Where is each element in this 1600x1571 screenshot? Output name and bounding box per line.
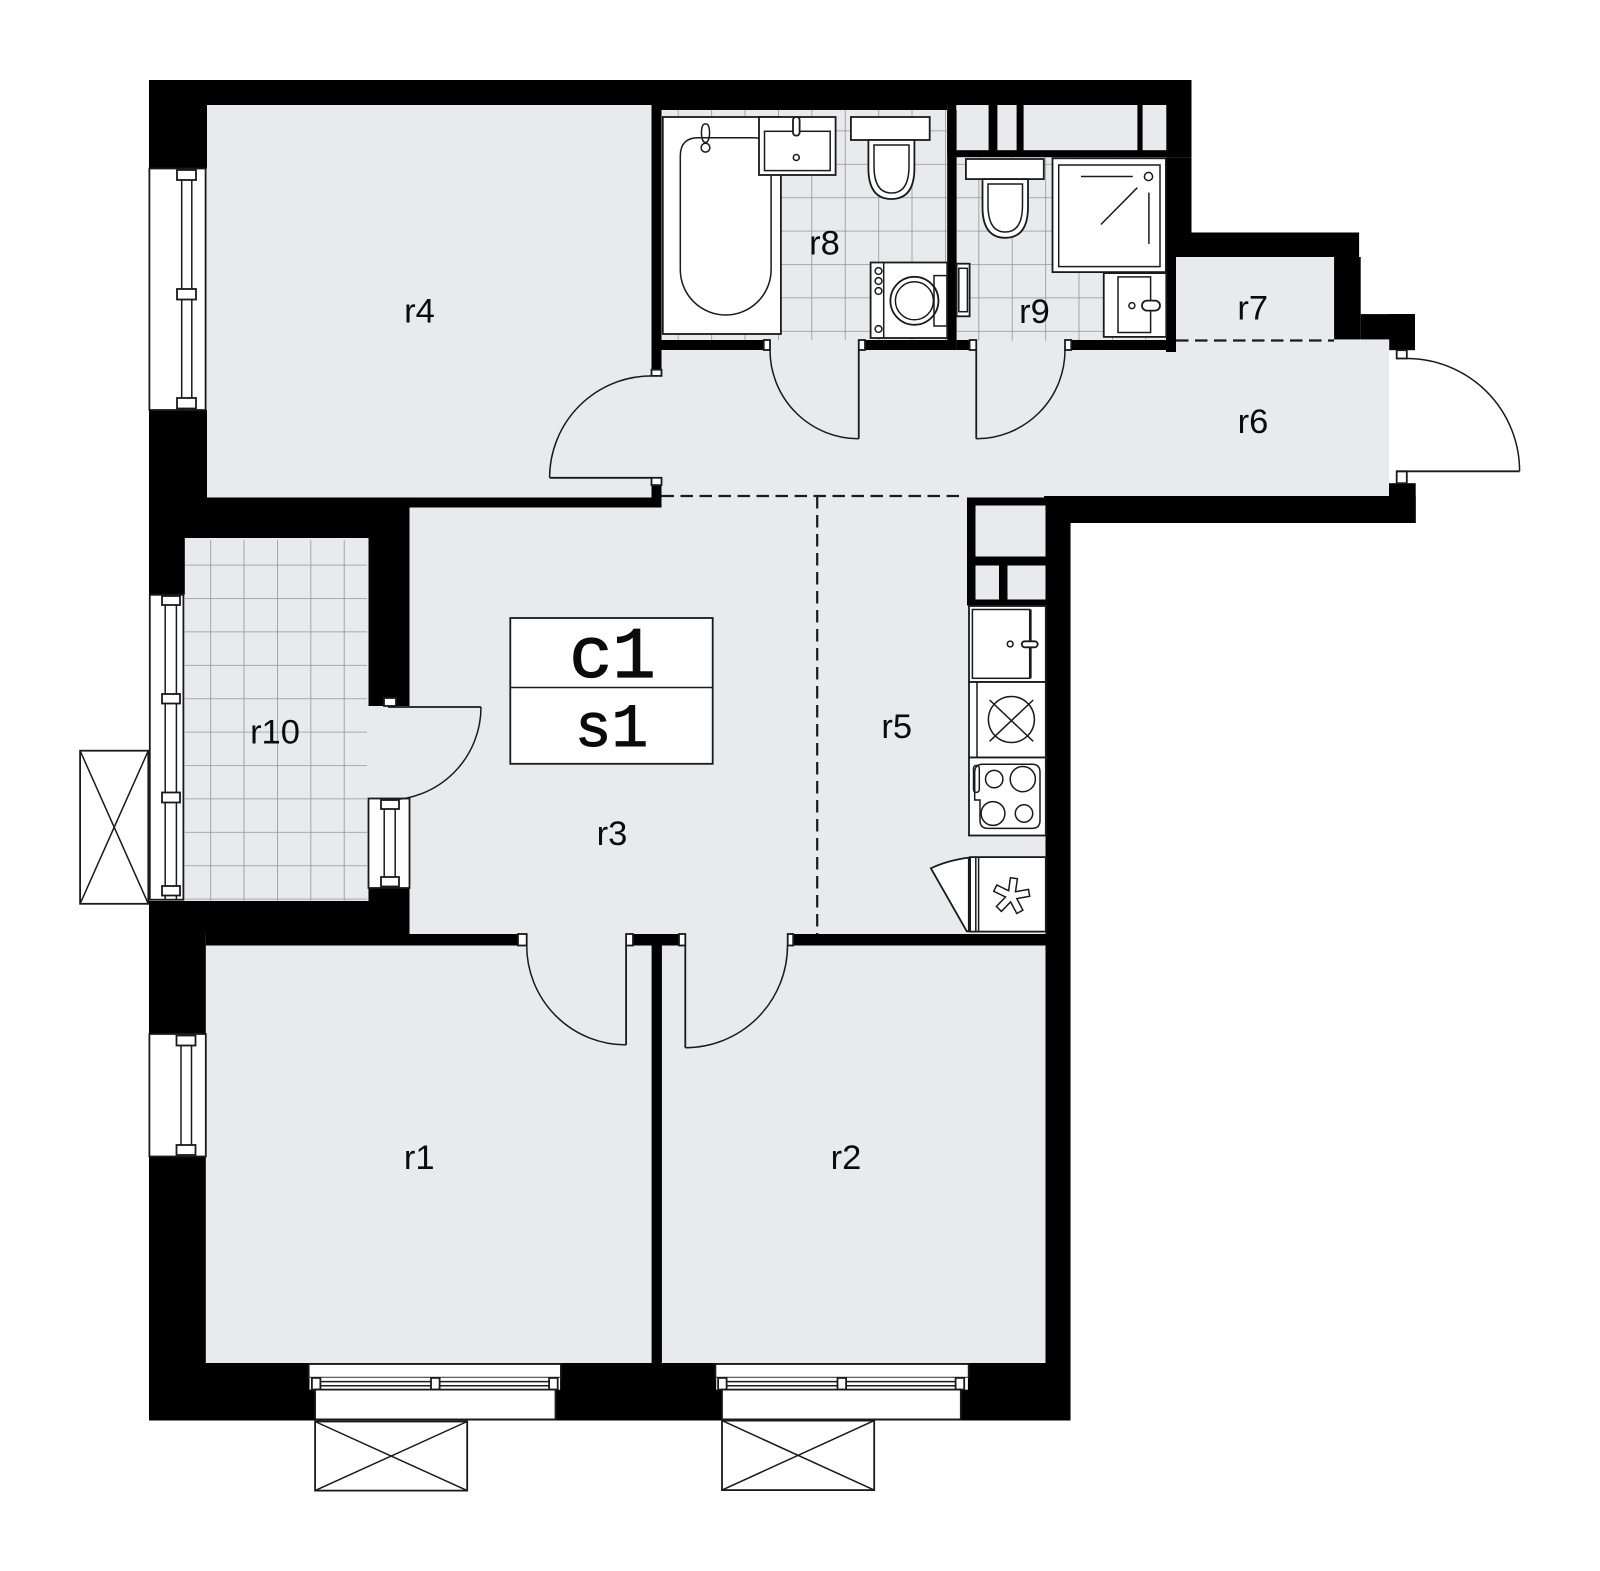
svg-text:r8: r8 <box>809 225 840 263</box>
svg-text:r6: r6 <box>1238 403 1269 441</box>
svg-text:s1: s1 <box>575 696 648 765</box>
svg-text:r3: r3 <box>597 815 628 853</box>
svg-text:r4: r4 <box>404 293 435 331</box>
svg-text:c1: c1 <box>569 617 655 699</box>
svg-text:r10: r10 <box>250 714 300 752</box>
svg-text:r9: r9 <box>1019 293 1050 331</box>
svg-text:r7: r7 <box>1237 290 1268 328</box>
svg-text:r2: r2 <box>831 1139 862 1177</box>
svg-text:r1: r1 <box>404 1139 435 1177</box>
svg-text:r5: r5 <box>881 708 912 746</box>
